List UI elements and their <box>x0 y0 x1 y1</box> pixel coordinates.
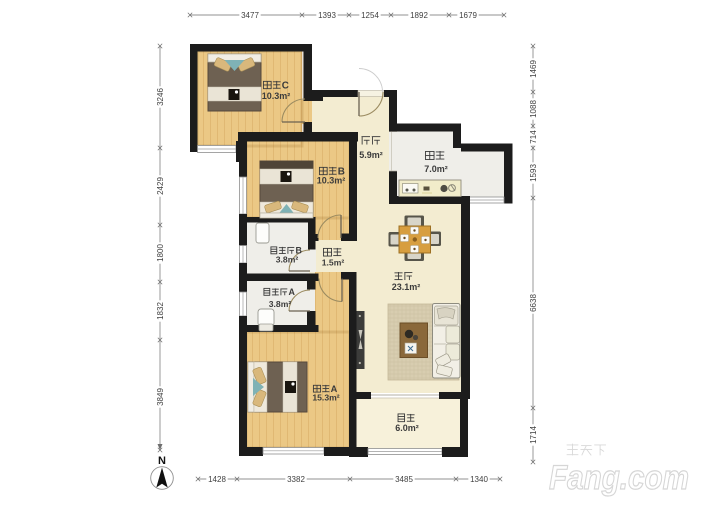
svg-text:15.3m²: 15.3m² <box>312 393 339 403</box>
svg-text:A: A <box>289 287 296 297</box>
svg-text:1088: 1088 <box>529 100 538 118</box>
svg-text:714: 714 <box>529 130 538 144</box>
svg-text:1679: 1679 <box>459 11 477 20</box>
svg-text:6638: 6638 <box>529 294 538 312</box>
svg-text:1714: 1714 <box>529 426 538 444</box>
svg-text:1254: 1254 <box>361 11 379 20</box>
svg-text:5.9m²: 5.9m² <box>359 150 383 160</box>
svg-text:1892: 1892 <box>410 11 428 20</box>
svg-text:3382: 3382 <box>287 475 305 484</box>
svg-text:C: C <box>282 81 289 92</box>
svg-text:1469: 1469 <box>529 60 538 78</box>
svg-text:10.3m²: 10.3m² <box>317 176 346 186</box>
svg-text:3485: 3485 <box>395 475 413 484</box>
svg-text:10.3m²: 10.3m² <box>262 91 291 101</box>
svg-text:7.0m²: 7.0m² <box>424 164 448 174</box>
svg-text:1800: 1800 <box>156 244 165 262</box>
svg-text:1340: 1340 <box>470 475 488 484</box>
svg-text:N: N <box>158 455 166 467</box>
svg-text:1428: 1428 <box>208 475 226 484</box>
svg-text:23.1m²: 23.1m² <box>392 282 421 292</box>
svg-text:Fang.com: Fang.com <box>549 459 689 497</box>
svg-text:3.8m²: 3.8m² <box>276 255 299 265</box>
svg-text:6.0m²: 6.0m² <box>395 423 419 433</box>
svg-text:1393: 1393 <box>318 11 336 20</box>
svg-text:1.5m²: 1.5m² <box>322 258 345 268</box>
svg-text:3849: 3849 <box>156 388 165 406</box>
svg-text:3246: 3246 <box>156 88 165 106</box>
svg-text:3.8m²: 3.8m² <box>269 299 292 309</box>
svg-text:3477: 3477 <box>241 11 259 20</box>
svg-text:1593: 1593 <box>529 164 538 182</box>
svg-text:1832: 1832 <box>156 302 165 320</box>
svg-text:2429: 2429 <box>156 177 165 195</box>
